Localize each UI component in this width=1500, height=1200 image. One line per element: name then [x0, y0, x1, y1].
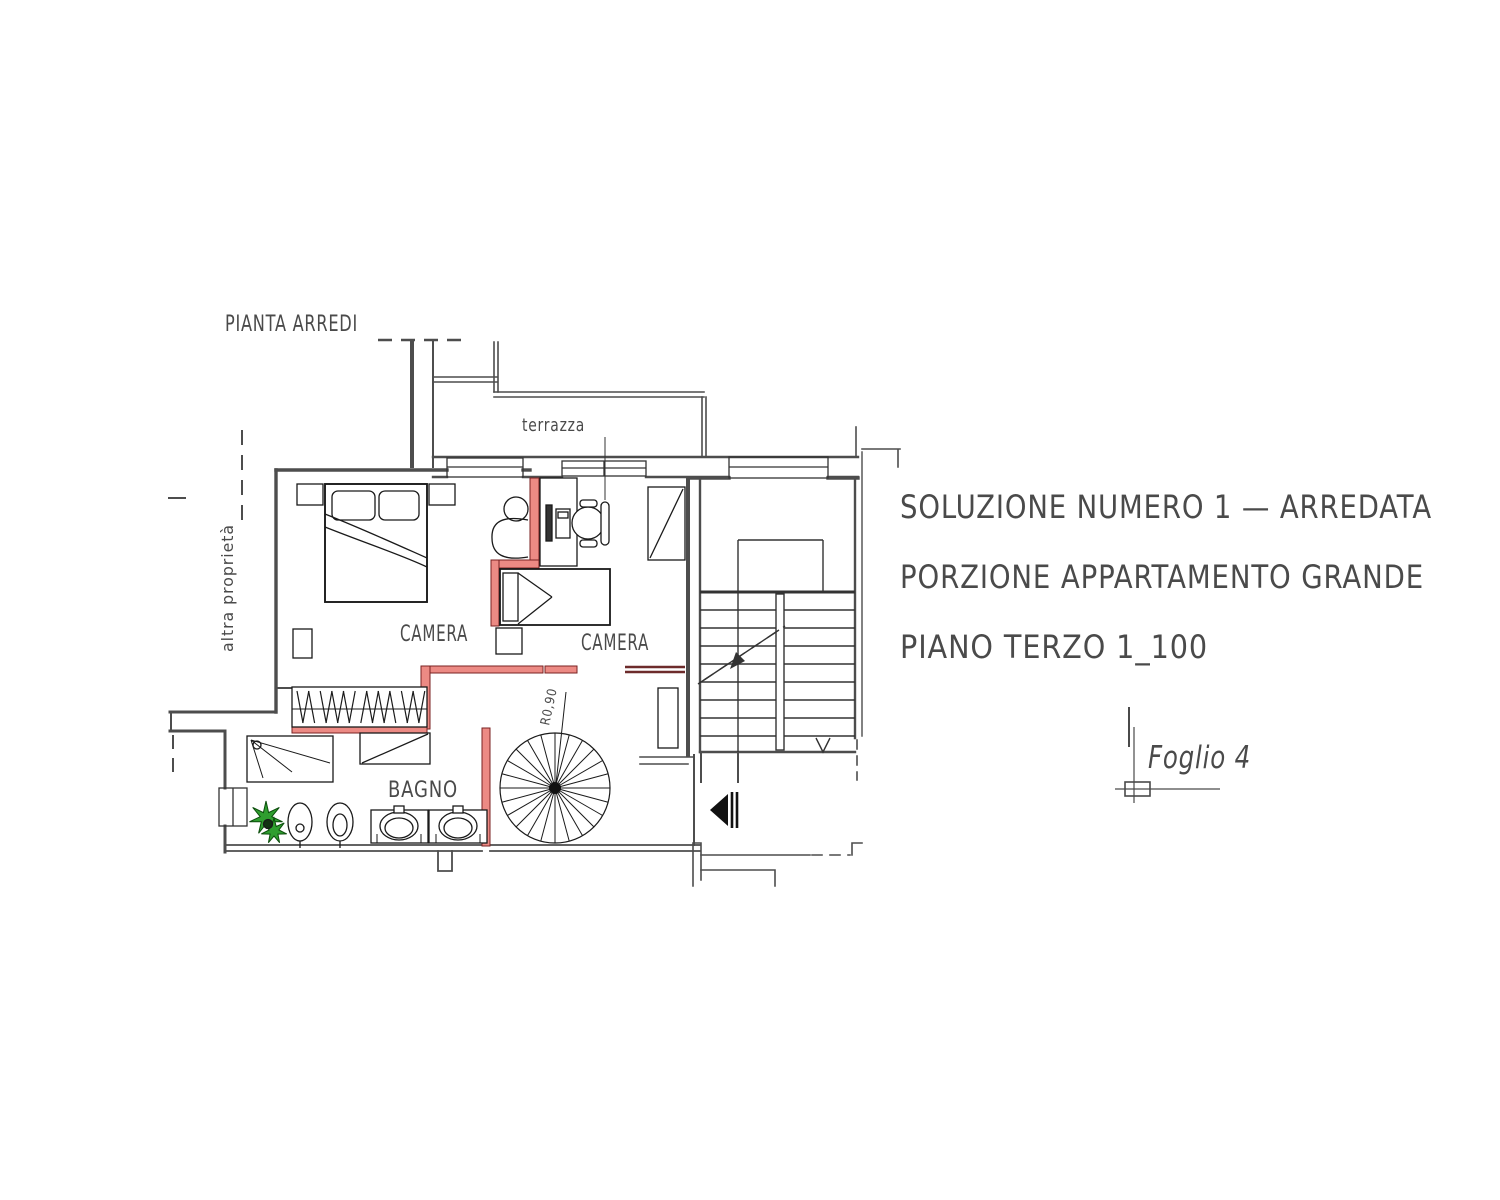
single-bed-headboard: [503, 573, 518, 621]
room-label-bathroom: BAGNO: [388, 778, 458, 803]
red-wall-desk-side: [530, 478, 539, 566]
spiral-step-edge: [555, 788, 608, 802]
nightstand: [429, 484, 455, 505]
boundary-label-other-property: altra proprietà: [218, 524, 237, 652]
window-stairwell: [729, 457, 828, 478]
wardrobe: [648, 487, 685, 560]
pc-tower-drive: [558, 512, 568, 518]
floorplan-page: PIANTA ARREDI terrazza altra proprietà C…: [0, 0, 1500, 1200]
furniture: [247, 478, 685, 848]
armchair: [492, 497, 528, 558]
floorplan-canvas: PIANTA ARREDI terrazza altra proprietà C…: [0, 0, 1500, 1200]
red-wall-bedroom2-south-a: [430, 666, 543, 673]
office-chair-armrest: [580, 540, 597, 547]
radius-leader-line: [556, 692, 566, 784]
spiral-step-edge: [555, 788, 569, 841]
spiral-step-edge: [541, 735, 555, 788]
stair-stringer: [776, 594, 784, 750]
computer-monitor: [546, 505, 552, 541]
spiral-step-edge: [502, 774, 555, 788]
window-bathroom: [219, 788, 247, 826]
bidet: [288, 803, 312, 848]
spiral-step-edge: [541, 788, 555, 841]
solution-title-line1: SOLUZIONE NUMERO 1 — ARREDATA: [900, 488, 1432, 526]
toilet: [327, 803, 353, 848]
drawing-title: PIANTA ARREDI: [225, 312, 358, 337]
spiral-staircase-pole: [549, 782, 561, 794]
staircase: [698, 540, 855, 752]
single-bed: [500, 569, 610, 625]
shower-tray: [247, 736, 333, 782]
spiral-step-edge: [555, 774, 608, 788]
bathroom-cabinet: [360, 733, 430, 764]
window-terrace-bedroom1: [447, 458, 523, 477]
window-terrace-bedroom2: [562, 461, 646, 476]
room-label-terrace: terrazza: [522, 415, 585, 436]
office-chair-armrest: [580, 500, 597, 507]
sink-vanity: [371, 806, 428, 843]
stair-down-arrow: [816, 738, 830, 752]
solution-title-line2: PORZIONE APPARTAMENTO GRANDE: [900, 558, 1424, 596]
radiator: [658, 688, 678, 748]
sink-tap: [453, 806, 463, 813]
sink-vanity: [429, 806, 487, 843]
entrance-arrow: [710, 792, 737, 828]
spiral-step-edge: [555, 735, 569, 788]
sheet-label: Foglio 4: [1148, 740, 1251, 776]
dresser: [293, 629, 312, 658]
spiral-step-edge: [502, 788, 555, 802]
red-wall-bedroom2-south-b: [545, 666, 577, 673]
plant-center: [264, 820, 273, 829]
pillow: [379, 491, 419, 520]
nightstand: [297, 484, 323, 505]
pillow: [332, 491, 375, 520]
solution-title-line3: PIANO TERZO 1_100: [900, 628, 1208, 666]
room-label-bedroom2: CAMERA: [581, 631, 649, 656]
room-label-bedroom1: CAMERA: [400, 622, 468, 647]
dark-red-wall-segment: [625, 667, 685, 672]
red-wall-bed-side: [491, 560, 499, 626]
office-chair-back: [601, 502, 609, 545]
double-bed: [325, 484, 427, 602]
wardrobe-closet: [292, 687, 427, 727]
sink-tap: [394, 806, 404, 813]
plant: [249, 801, 286, 843]
spiral-radius-label: R0,90: [538, 687, 561, 727]
nightstand: [496, 628, 522, 654]
